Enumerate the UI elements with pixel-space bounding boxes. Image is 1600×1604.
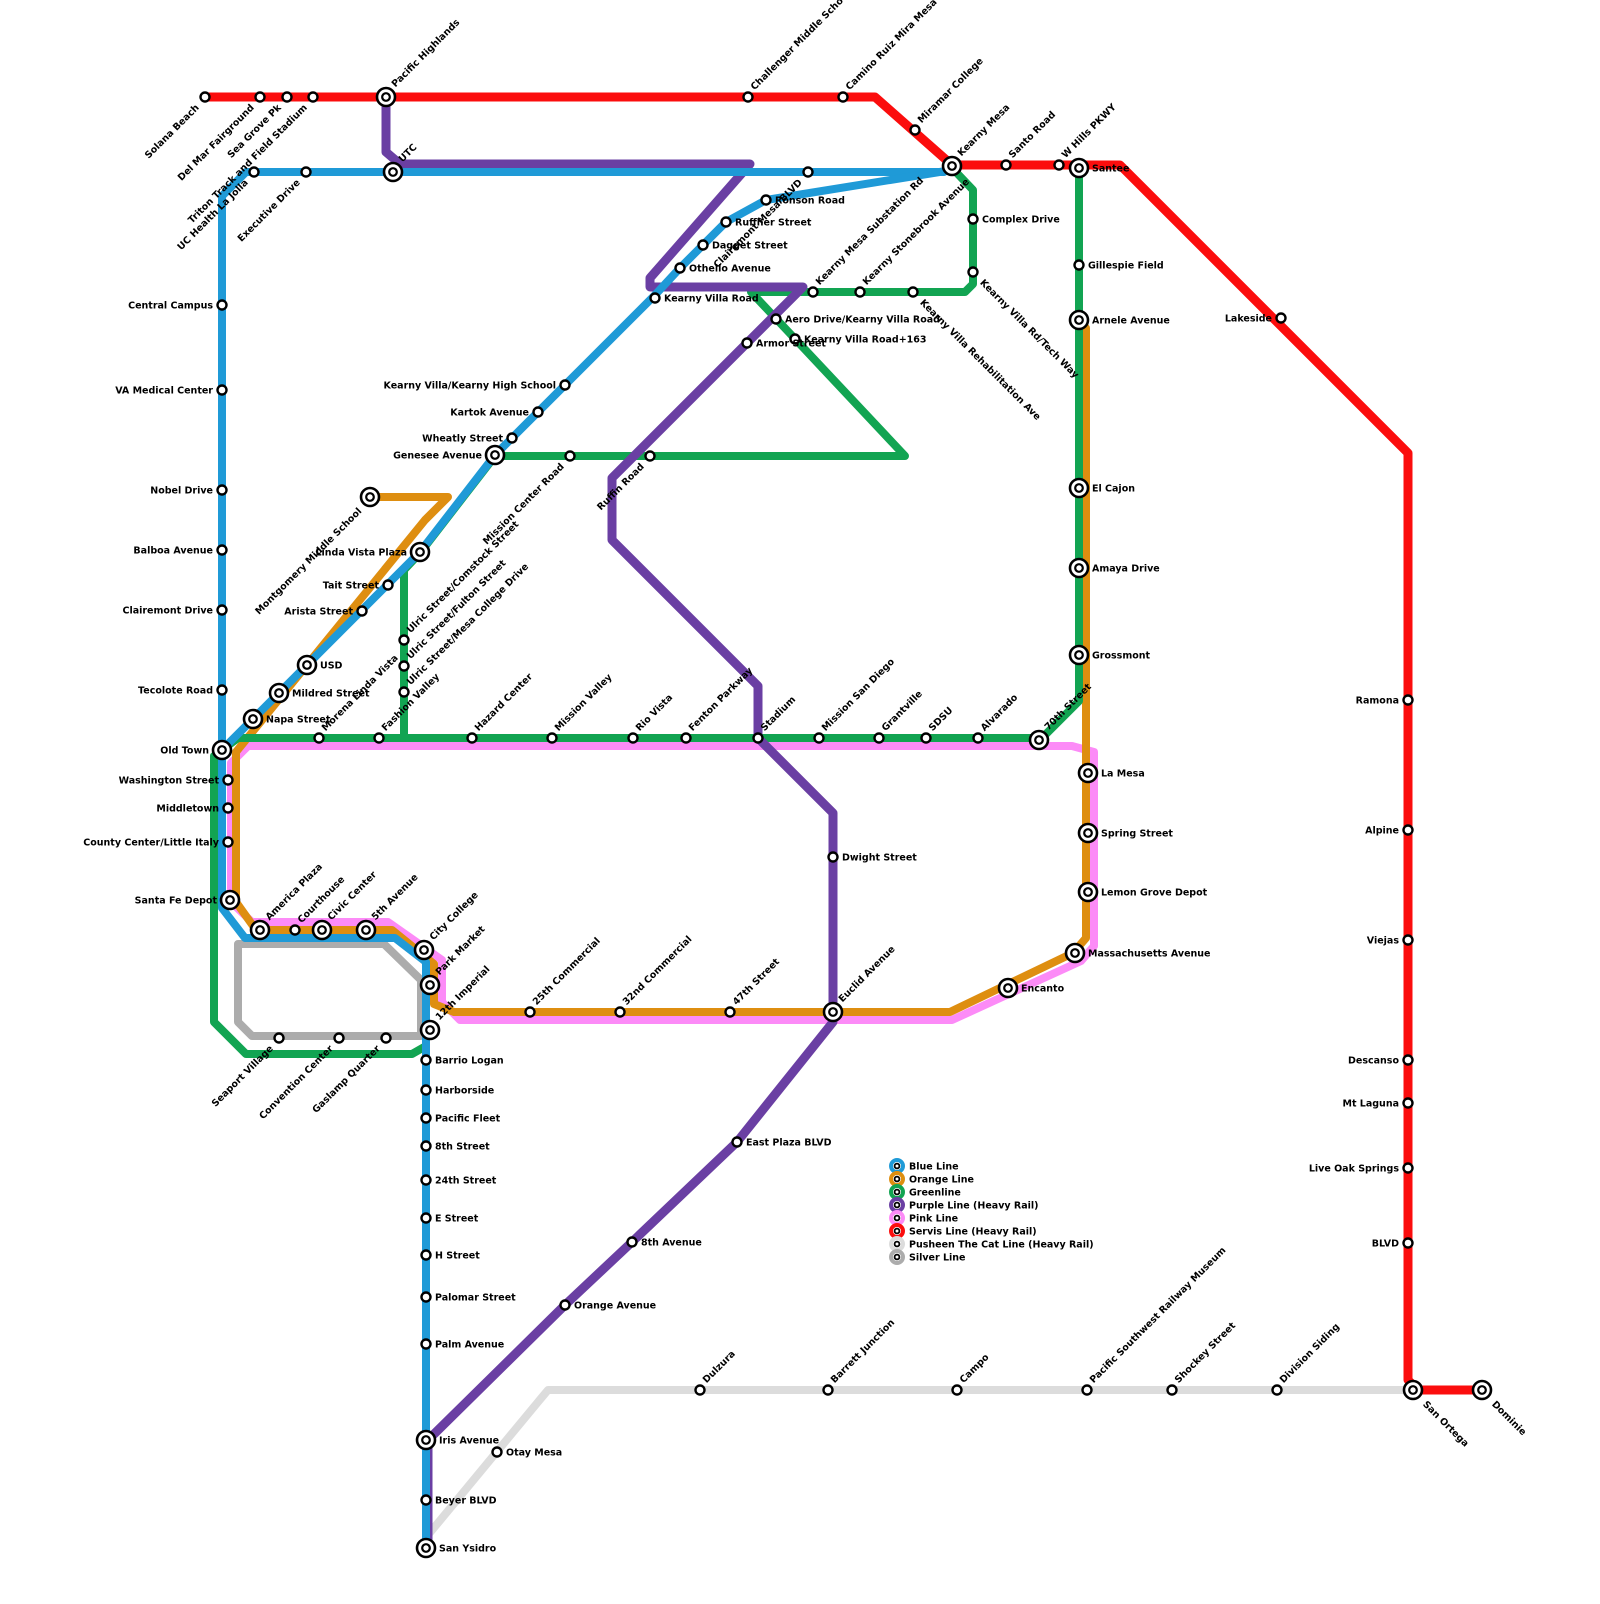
station-label: Othello Avenue xyxy=(689,264,771,275)
station-mission-center-road: Mission Center Road xyxy=(481,452,574,548)
station-label: Kartok Avenue xyxy=(450,408,529,419)
station-label: Wheatly Street xyxy=(422,434,503,445)
station-label: Dominie xyxy=(1489,1399,1528,1438)
station-label: Fenton Parkway xyxy=(687,665,756,734)
interchange-marker-inner-icon xyxy=(422,1436,430,1444)
station-label: Lakeside xyxy=(1225,314,1272,325)
stop-marker-icon xyxy=(762,196,771,205)
station-pacific-fleet: Pacific Fleet xyxy=(422,1114,501,1125)
station-label: Solana Beach xyxy=(143,102,202,161)
station-label: 24th Street xyxy=(435,1176,497,1187)
station-alpine: Alpine xyxy=(1365,826,1412,837)
stop-marker-icon xyxy=(969,215,978,224)
station-grossmont: Grossmont xyxy=(1070,646,1151,664)
stop-marker-icon xyxy=(839,93,848,102)
station-beyer-blvd: Beyer BLVD xyxy=(422,1496,497,1507)
stop-marker-icon xyxy=(508,434,517,443)
station-label: Kearny Stonebrook Avenue xyxy=(861,177,972,288)
station-label: Mission Valley xyxy=(553,671,615,733)
station-massachusetts-avenue: Massachusetts Avenue xyxy=(1066,944,1211,962)
station-city-college: City College xyxy=(415,890,481,959)
station-label: E Street xyxy=(435,1214,479,1225)
station-washington-street: Washington Street xyxy=(119,776,233,787)
interchange-marker-inner-icon xyxy=(1084,888,1092,896)
stop-marker-icon xyxy=(726,1008,735,1017)
station-label: Miramar College xyxy=(916,56,986,126)
legend-label: Greenline xyxy=(909,1188,961,1199)
interchange-marker-inner-icon xyxy=(303,661,311,669)
stop-marker-icon xyxy=(218,546,227,555)
station-label: Old Town xyxy=(160,746,209,757)
stop-marker-icon xyxy=(722,218,731,227)
station-label: Alvarado xyxy=(979,692,1021,734)
station-label: Lemon Grove Depot xyxy=(1101,888,1208,899)
stop-marker-icon xyxy=(651,294,660,303)
stop-marker-icon xyxy=(302,168,311,177)
station-label: Ronson Road xyxy=(775,196,845,207)
stop-marker-icon xyxy=(696,1386,705,1395)
legend-item-purple-line: Purple Line (Heavy Rail) xyxy=(891,1199,1038,1212)
stop-marker-icon xyxy=(1404,1099,1413,1108)
station-label: Arista Street xyxy=(284,607,353,618)
stop-marker-icon xyxy=(422,1086,431,1095)
stop-marker-icon xyxy=(744,93,753,102)
legend-item-blue-line: Blue Line xyxy=(891,1160,959,1173)
station-label: Kearny Mesa xyxy=(956,102,1013,159)
stop-marker-icon xyxy=(561,381,570,390)
stop-marker-icon xyxy=(824,1386,833,1395)
station-label: Ramona xyxy=(1356,696,1399,707)
interchange-marker-inner-icon xyxy=(1075,316,1083,324)
station-barrio-logan: Barrio Logan xyxy=(422,1056,504,1067)
interchange-marker-inner-icon xyxy=(275,689,283,697)
station-othello-avenue: Othello Avenue xyxy=(676,264,771,275)
station-label: Camino Ruiz Mira Mesa BLVD xyxy=(844,0,961,93)
station-label: Armor Street xyxy=(756,339,826,350)
station-label: Santo Road xyxy=(1007,109,1058,160)
station-label: Pacific Fleet xyxy=(435,1114,501,1125)
station-label: Hazard Center xyxy=(473,671,535,733)
stop-marker-icon xyxy=(772,315,781,324)
station-label: Linda Vista Plaza xyxy=(315,548,407,559)
station-label: Pacific Highlands xyxy=(390,17,463,90)
stop-marker-icon xyxy=(629,734,638,743)
transit-map: Solana BeachDel Mar FairgroundSea Grove … xyxy=(0,0,1600,1600)
interchange-marker-inner-icon xyxy=(249,715,257,723)
station-blvd: BLVD xyxy=(1372,1239,1413,1250)
station-tecolote-road: Tecolote Road xyxy=(138,686,226,697)
station-harborside: Harborside xyxy=(422,1086,495,1097)
stop-marker-icon xyxy=(335,1034,344,1043)
interchange-marker-inner-icon xyxy=(416,548,424,556)
interchange-marker-inner-icon xyxy=(948,162,956,170)
station-gaslamp-quarter: Gaslamp Quarter xyxy=(310,1034,390,1116)
stop-marker-icon xyxy=(804,168,813,177)
interchange-marker-inner-icon xyxy=(426,981,434,989)
stop-marker-icon xyxy=(422,1114,431,1123)
stop-marker-icon xyxy=(974,734,983,743)
station-aero-drive-kearny-villa-road: Aero Drive/Kearny Villa Road xyxy=(772,315,940,326)
stop-marker-icon xyxy=(682,734,691,743)
station-label: Spring Street xyxy=(1101,829,1173,840)
stop-marker-icon xyxy=(468,734,477,743)
station-label: San Ysidro xyxy=(439,1544,497,1555)
interchange-marker-inner-icon xyxy=(422,1544,430,1552)
interchange-marker-inner-icon xyxy=(420,946,428,954)
stop-marker-icon xyxy=(1002,161,1011,170)
stop-marker-icon xyxy=(875,734,884,743)
station-label: Beyer BLVD xyxy=(435,1496,497,1507)
station-32nd-commercial: 32nd Commercial xyxy=(616,934,695,1016)
station-executive-drive: Executive Drive xyxy=(236,168,311,245)
stop-marker-icon xyxy=(422,1496,431,1505)
station-label: Complex Drive xyxy=(982,215,1060,226)
interchange-marker-inner-icon xyxy=(829,1008,837,1016)
stop-marker-icon xyxy=(358,607,367,616)
station-label: Kearny Villa/Kearny High School xyxy=(384,381,556,392)
station-label: Ulric Street/Fulton Street xyxy=(405,558,509,662)
stop-marker-icon xyxy=(422,1176,431,1185)
stop-marker-icon xyxy=(400,662,409,671)
station-kearny-villa-road: Kearny Villa Road xyxy=(651,294,759,305)
stop-marker-icon xyxy=(548,734,557,743)
stop-marker-icon xyxy=(922,734,931,743)
station-label: Gillespie Field xyxy=(1088,261,1164,272)
interchange-marker-inner-icon xyxy=(389,168,397,176)
interchange-marker-inner-icon xyxy=(1004,984,1012,992)
stop-marker-icon xyxy=(422,1142,431,1151)
station-division-siding: Division Siding xyxy=(1273,1321,1343,1394)
station-label: East Plaza BLVD xyxy=(746,1138,832,1149)
pusheen-line-icon-center xyxy=(895,1242,900,1247)
station-label: Dagget Street xyxy=(712,241,788,252)
station-label: Barrio Logan xyxy=(435,1056,504,1067)
line-silver xyxy=(238,944,421,1036)
legend-label: Orange Line xyxy=(909,1175,974,1186)
stop-marker-icon xyxy=(754,734,763,743)
stop-marker-icon xyxy=(224,776,233,785)
stop-marker-icon xyxy=(1404,936,1413,945)
station-balboa-avenue: Balboa Avenue xyxy=(133,546,226,557)
station-lemon-grove-depot: Lemon Grove Depot xyxy=(1079,883,1208,901)
station-label: Euclid Avenue xyxy=(837,944,898,1005)
station-label: W Hills PKWY xyxy=(1060,102,1119,161)
stop-marker-icon xyxy=(384,581,393,590)
station-label: BLVD xyxy=(1372,1239,1399,1250)
stop-marker-icon xyxy=(250,168,259,177)
interchange-marker-inner-icon xyxy=(226,896,234,904)
stop-marker-icon xyxy=(224,838,233,847)
station-label: USD xyxy=(320,661,343,672)
station-label: Descanso xyxy=(1348,1056,1399,1067)
legend-label: Blue Line xyxy=(909,1162,959,1173)
legend-item-red-line: Servis Line (Heavy Rail) xyxy=(891,1225,1037,1238)
station-wheatly-street: Wheatly Street xyxy=(422,434,516,445)
station-descanso: Descanso xyxy=(1348,1056,1412,1067)
stop-marker-icon xyxy=(1075,261,1084,270)
station-armor-street: Armor Street xyxy=(743,339,827,350)
station-label: Massachusetts Avenue xyxy=(1088,949,1211,960)
interchange-marker-inner-icon xyxy=(426,1026,434,1034)
stop-marker-icon xyxy=(275,1034,284,1043)
stop-marker-icon xyxy=(422,1214,431,1223)
station-label: Harborside xyxy=(435,1086,494,1097)
legend-label: Pusheen The Cat Line (Heavy Rail) xyxy=(909,1240,1094,1251)
station-label: Santa Fe Depot xyxy=(135,896,218,907)
station-el-cajon: El Cajon xyxy=(1070,479,1135,497)
line-purple xyxy=(386,100,833,1548)
stop-marker-icon xyxy=(534,408,543,417)
station-label: 8th Street xyxy=(435,1142,490,1153)
station-napa-street: Napa Street xyxy=(244,710,331,728)
station-label: Middletown xyxy=(156,804,219,815)
station-label: Genesee Avenue xyxy=(393,451,482,462)
blue-line-icon-center xyxy=(895,1164,900,1169)
station-viejas: Viejas xyxy=(1367,936,1413,947)
interchange-marker-inner-icon xyxy=(1084,769,1092,777)
stop-marker-icon xyxy=(699,241,708,250)
station-25th-commercial: 25th Commercial xyxy=(526,936,603,1017)
station-label: Palm Avenue xyxy=(435,1340,504,1351)
stop-marker-icon xyxy=(815,734,824,743)
station-label: 32nd Commercial xyxy=(621,934,695,1008)
station-label: Nobel Drive xyxy=(150,486,213,497)
stop-marker-icon xyxy=(561,1301,570,1310)
station-label: VA Medical Center xyxy=(115,386,213,397)
station-e-street: E Street xyxy=(422,1214,479,1225)
station-label: Tait Street xyxy=(323,581,380,592)
station-label: Amaya Drive xyxy=(1092,564,1160,575)
stop-marker-icon xyxy=(400,688,409,697)
stop-marker-icon xyxy=(616,1008,625,1017)
stations-layer: Solana BeachDel Mar FairgroundSea Grove … xyxy=(83,0,1528,1557)
station-palomar-street: Palomar Street xyxy=(422,1293,517,1304)
station-label: Rio Vista xyxy=(634,692,675,733)
station-camino-ruiz-mira-mesa-blvd: Camino Ruiz Mira Mesa BLVD xyxy=(839,0,962,102)
station-label: County Center/Little Italy xyxy=(83,838,220,849)
station-kearny-villa-rehabilitation-ave: Kearny Villa Rehabilitation Ave xyxy=(909,288,1043,423)
station-label: Grantville xyxy=(880,689,925,734)
orange-line-icon-center xyxy=(895,1177,900,1182)
green-line-icon-center xyxy=(895,1190,900,1195)
station-genesee-avenue: Genesee Avenue xyxy=(393,446,504,464)
interchange-marker-inner-icon xyxy=(1075,164,1083,172)
stop-marker-icon xyxy=(628,1238,637,1247)
station-label: Ulric Street/Mesa College Drive xyxy=(405,561,531,687)
station-8th-street: 8th Street xyxy=(422,1142,491,1153)
station-ulric-street-fulton-street: Ulric Street/Fulton Street xyxy=(400,558,509,671)
legend-item-silver-line: Silver Line xyxy=(891,1251,966,1264)
legend-label: Pink Line xyxy=(909,1214,958,1225)
interchange-marker-inner-icon xyxy=(1478,1386,1486,1394)
station-va-medical-center: VA Medical Center xyxy=(115,386,226,397)
stop-marker-icon xyxy=(422,1293,431,1302)
stop-marker-icon xyxy=(953,1386,962,1395)
stop-marker-icon xyxy=(256,93,265,102)
station-47th-street: 47th Street xyxy=(726,956,783,1016)
stop-marker-icon xyxy=(909,288,918,297)
station-label: Palomar Street xyxy=(435,1293,516,1304)
stop-marker-icon xyxy=(218,486,227,495)
interchange-marker-inner-icon xyxy=(256,926,264,934)
station-label: Viejas xyxy=(1367,936,1400,947)
station-label: Montgomery Middle School xyxy=(253,506,364,617)
station-label: Stadium xyxy=(759,694,798,733)
stop-marker-icon xyxy=(1273,1386,1282,1395)
station-label: Alpine xyxy=(1365,826,1399,837)
interchange-marker-inner-icon xyxy=(1071,949,1079,957)
stop-marker-icon xyxy=(422,1340,431,1349)
station-label: Ruffner Street xyxy=(735,218,812,229)
station-mt-laguna: Mt Laguna xyxy=(1342,1099,1412,1110)
interchange-marker-inner-icon xyxy=(1409,1386,1417,1394)
station-pacific-southwest-railway-museum: Pacific Southwest Railway Museum xyxy=(1083,1245,1229,1394)
station-palm-avenue: Palm Avenue xyxy=(422,1340,505,1351)
interchange-marker-inner-icon xyxy=(491,451,499,459)
station-label: Dwight Street xyxy=(842,853,917,864)
station-label: America Plaza xyxy=(264,862,325,923)
stop-marker-icon xyxy=(566,452,575,461)
station-usd: USD xyxy=(298,656,343,674)
station-label: 5th Avenue xyxy=(370,872,421,923)
station-label: Grossmont xyxy=(1092,651,1151,662)
station-san-ysidro: San Ysidro xyxy=(417,1539,497,1557)
interchange-marker-inner-icon xyxy=(1084,829,1092,837)
station-shockey-street: Shockey Street xyxy=(1168,1320,1239,1394)
stop-marker-icon xyxy=(809,288,818,297)
silver-line-icon-center xyxy=(895,1255,900,1260)
interchange-marker-inner-icon xyxy=(1075,564,1083,572)
station-label: 47th Street xyxy=(731,956,782,1007)
stop-marker-icon xyxy=(283,93,292,102)
legend-label: Purple Line (Heavy Rail) xyxy=(909,1201,1038,1212)
stop-marker-icon xyxy=(743,339,752,348)
station-santo-road: Santo Road xyxy=(1002,109,1059,169)
legend-label: Servis Line (Heavy Rail) xyxy=(909,1227,1037,1238)
stop-marker-icon xyxy=(676,264,685,273)
station-barrett-junction: Barrett Junction xyxy=(824,1317,898,1394)
stop-marker-icon xyxy=(315,734,324,743)
station-dominie: Dominie xyxy=(1473,1381,1528,1438)
station-gillespie-field: Gillespie Field xyxy=(1075,261,1164,272)
station-label: Central Campus xyxy=(128,301,213,312)
interchange-marker-inner-icon xyxy=(1075,651,1083,659)
stop-marker-icon xyxy=(218,301,227,310)
station-linda-vista-plaza: Linda Vista Plaza xyxy=(315,543,429,561)
stop-marker-icon xyxy=(382,1034,391,1043)
station-label: Ulric Street/Comstock Street xyxy=(405,519,522,636)
interchange-marker-inner-icon xyxy=(218,746,226,754)
station-live-oak-springs: Live Oak Springs xyxy=(1309,1164,1413,1175)
stop-marker-icon xyxy=(856,288,865,297)
station-label: Live Oak Springs xyxy=(1309,1164,1400,1175)
station-ruffner-street: Ruffner Street xyxy=(722,218,812,229)
station-label: Aero Drive/Kearny Villa Road xyxy=(785,315,940,326)
station-label: Mt Laguna xyxy=(1342,1099,1399,1110)
station-spring-street: Spring Street xyxy=(1079,824,1173,842)
legend-item-pink-line: Pink Line xyxy=(891,1212,958,1225)
station-dagget-street: Dagget Street xyxy=(699,241,789,252)
station-arnele-avenue: Arnele Avenue xyxy=(1070,311,1170,329)
station-iris-avenue: Iris Avenue xyxy=(417,1431,499,1449)
stop-marker-icon xyxy=(829,853,838,862)
stop-marker-icon xyxy=(400,636,409,645)
station-label: Clairemont Drive xyxy=(122,606,213,617)
purple-line-icon-center xyxy=(895,1203,900,1208)
station-mission-valley: Mission Valley xyxy=(548,671,616,742)
station-label: Barrett Junction xyxy=(829,1317,897,1385)
legend-item-pusheen-line: Pusheen The Cat Line (Heavy Rail) xyxy=(891,1238,1094,1251)
station-santa-fe-depot: Santa Fe Depot xyxy=(135,891,239,909)
stop-marker-icon xyxy=(218,686,227,695)
stop-marker-icon xyxy=(291,926,300,935)
legend-item-green-line: Greenline xyxy=(891,1186,961,1199)
station-nobel-drive: Nobel Drive xyxy=(150,486,226,497)
station-label: Shockey Street xyxy=(1173,1320,1239,1386)
stop-marker-icon xyxy=(1168,1386,1177,1395)
station-label: Challenger Middle School xyxy=(749,0,853,93)
legend-label: Silver Line xyxy=(909,1253,966,1264)
station-dwight-street: Dwight Street xyxy=(829,853,918,864)
station-label: Mission Center Road xyxy=(481,461,567,547)
station-orange-avenue: Orange Avenue xyxy=(561,1301,657,1312)
station-clairemont-drive: Clairemont Drive xyxy=(122,606,226,617)
stop-marker-icon xyxy=(201,93,210,102)
station-fenton-parkway: Fenton Parkway xyxy=(682,665,756,743)
station-la-mesa: La Mesa xyxy=(1079,764,1145,782)
stop-marker-icon xyxy=(1404,826,1413,835)
stop-marker-icon xyxy=(218,606,227,615)
station-kartok-avenue: Kartok Avenue xyxy=(450,408,542,419)
station-24th-street: 24th Street xyxy=(422,1176,497,1187)
stop-marker-icon xyxy=(1083,1386,1092,1395)
interchange-marker-inner-icon xyxy=(362,926,370,934)
interchange-marker-inner-icon xyxy=(1035,736,1043,744)
station-label: El Cajon xyxy=(1092,484,1135,495)
stop-marker-icon xyxy=(493,1448,502,1457)
stop-marker-icon xyxy=(1277,314,1286,323)
station-county-center-little-italy: County Center/Little Italy xyxy=(83,838,232,849)
station-label: Dulzura xyxy=(701,1349,738,1386)
station-amaya-drive: Amaya Drive xyxy=(1070,559,1160,577)
station-w-hills-pkwy: W Hills PKWY xyxy=(1055,102,1119,170)
interchange-marker-inner-icon xyxy=(318,926,326,934)
interchange-marker-inner-icon xyxy=(382,93,390,101)
station-label: Orange Avenue xyxy=(574,1301,656,1312)
stop-marker-icon xyxy=(969,268,978,277)
station-label: Santee xyxy=(1092,164,1129,175)
station-label: Campo xyxy=(958,1352,992,1386)
stop-marker-icon xyxy=(1404,1239,1413,1248)
stop-marker-icon xyxy=(1404,1164,1413,1173)
legend: Blue LineOrange LineGreenlinePurple Line… xyxy=(891,1160,1094,1264)
station-miramar-college: Miramar College xyxy=(911,56,986,135)
stop-marker-icon xyxy=(309,93,318,102)
stop-marker-icon xyxy=(911,126,920,135)
station-h-street: H Street xyxy=(422,1251,481,1262)
pink-line-icon-center xyxy=(895,1216,900,1221)
station-label: SDSU xyxy=(927,705,955,733)
stop-marker-icon xyxy=(1055,161,1064,170)
line-pusheen xyxy=(428,1390,1413,1535)
interchange-marker-inner-icon xyxy=(366,493,374,501)
station-label: Pacific Southwest Railway Museum xyxy=(1088,1245,1229,1386)
station-label: Balboa Avenue xyxy=(133,546,213,557)
station-label: Triton Track and Field Stadium xyxy=(186,102,310,226)
station-label: Iris Avenue xyxy=(439,1436,499,1447)
station-challenger-middle-school: Challenger Middle School xyxy=(744,0,853,101)
station-label: H Street xyxy=(435,1251,480,1262)
